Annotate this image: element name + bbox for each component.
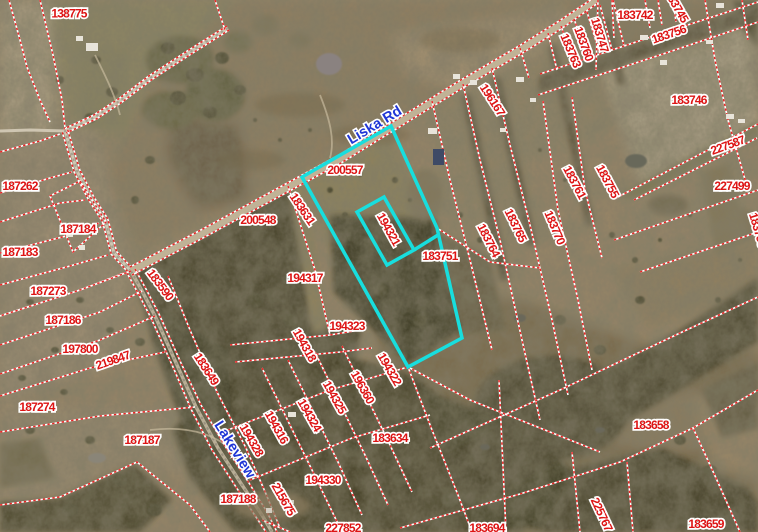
- svg-text:187184: 187184: [60, 222, 96, 236]
- svg-text:183742: 183742: [617, 8, 653, 22]
- svg-text:187273: 187273: [30, 284, 66, 298]
- svg-text:227499: 227499: [714, 179, 750, 193]
- svg-text:183746: 183746: [671, 93, 707, 107]
- svg-text:183634: 183634: [372, 431, 408, 445]
- svg-text:138775: 138775: [51, 7, 87, 21]
- svg-text:183658: 183658: [633, 418, 669, 432]
- svg-text:187187: 187187: [124, 433, 160, 447]
- svg-text:197800: 197800: [62, 342, 98, 356]
- svg-text:187262: 187262: [2, 179, 38, 193]
- svg-text:187186: 187186: [45, 313, 81, 327]
- svg-text:194317: 194317: [287, 271, 323, 285]
- svg-text:187183: 187183: [2, 245, 38, 259]
- svg-text:227852: 227852: [325, 521, 361, 532]
- svg-text:183659: 183659: [688, 517, 724, 531]
- svg-text:183751: 183751: [422, 249, 458, 263]
- svg-text:194323: 194323: [329, 319, 365, 333]
- svg-text:200548: 200548: [240, 213, 276, 227]
- svg-text:187188: 187188: [220, 492, 256, 506]
- svg-text:187274: 187274: [19, 400, 55, 414]
- svg-text:194330: 194330: [305, 473, 341, 487]
- svg-text:183694: 183694: [469, 521, 505, 532]
- svg-text:200557: 200557: [327, 163, 363, 177]
